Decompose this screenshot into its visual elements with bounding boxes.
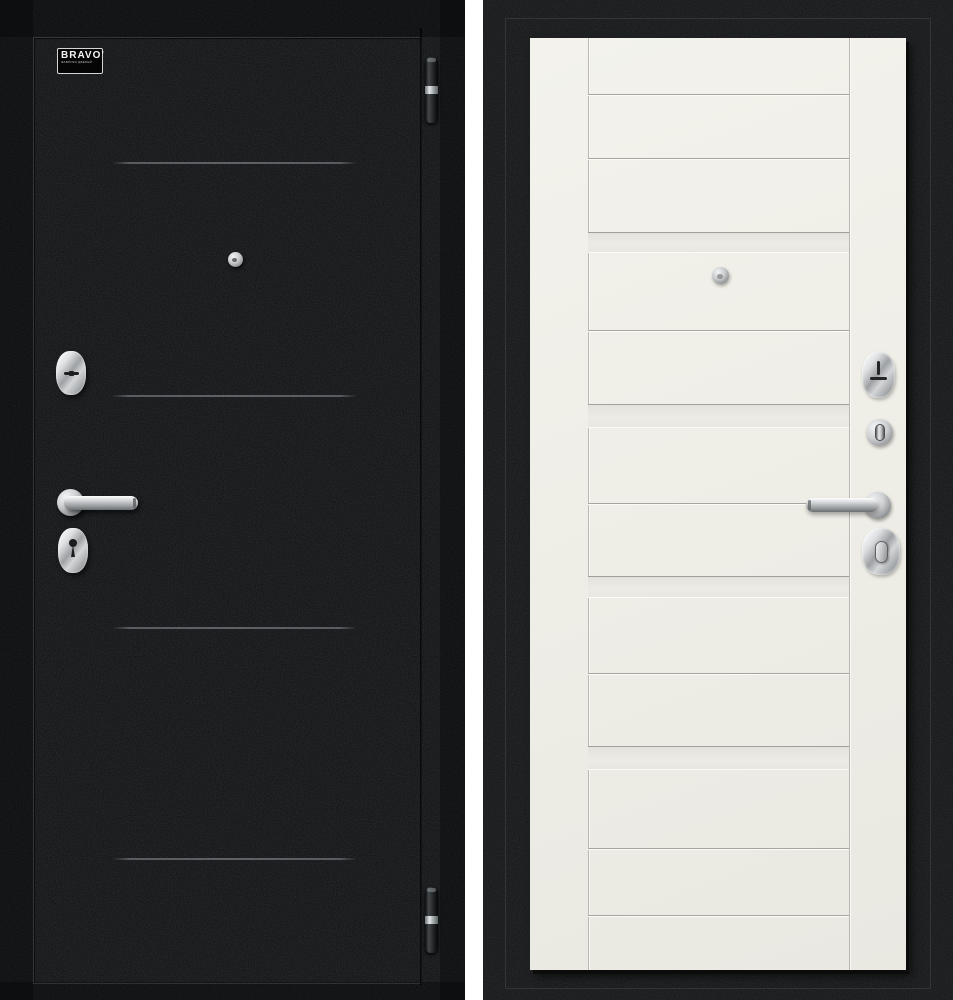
groove-line (111, 395, 357, 397)
groove-line (112, 858, 357, 860)
image-gap (465, 0, 483, 1000)
keyhole-slot (64, 372, 79, 375)
thumbturn-knob (875, 424, 885, 441)
panel-rail (588, 576, 849, 598)
door-leaf-bevel (33, 37, 422, 984)
white-door-leaf (530, 38, 906, 970)
panel-groove (588, 158, 849, 160)
hinge (425, 887, 438, 953)
door-interior-view (483, 0, 953, 1000)
brand-logo: BRAVO' ФАБРИКА ДВЕРЕЙ (57, 48, 103, 74)
peephole (228, 252, 243, 267)
panel-rail (588, 746, 849, 770)
keyhole-escutcheon (58, 528, 88, 573)
groove-line (112, 627, 357, 629)
lock-cylinder-escutcheon (862, 352, 895, 398)
panel-groove (588, 330, 849, 332)
panel-rail (588, 232, 849, 253)
door-frame-edge (0, 0, 33, 1000)
lock-cylinder-escutcheon (56, 351, 86, 395)
door-handle-lever (64, 496, 138, 510)
panel-rail (588, 404, 849, 428)
door-frame-edge (0, 0, 465, 37)
door-handle-lever (806, 498, 878, 512)
door-frame-edge (440, 0, 465, 1000)
thumbturn-knob (875, 541, 888, 563)
door-frame-edge (0, 982, 465, 1000)
door-product-image: BRAVO' ФАБРИКА ДВЕРЕЙ (0, 0, 953, 1000)
keyhole-slot-bar (870, 377, 887, 380)
panel-groove (588, 673, 849, 675)
door-exterior-view: BRAVO' ФАБРИКА ДВЕРЕЙ (0, 0, 465, 1000)
hinge (425, 57, 438, 123)
keyhole-slot (877, 361, 880, 375)
panel-groove (588, 94, 849, 96)
panel-groove (588, 848, 849, 850)
peephole (712, 267, 729, 284)
brand-logo-tagline: ФАБРИКА ДВЕРЕЙ (61, 61, 82, 64)
keyhole (69, 539, 77, 547)
night-latch-thumbturn (866, 419, 893, 446)
brand-logo-text: BRAVO' (61, 50, 102, 61)
groove-line (112, 162, 357, 164)
panel-groove (588, 915, 849, 917)
door-leaf-edge-line (420, 28, 422, 985)
deadbolt-thumbturn-escutcheon (862, 528, 900, 575)
